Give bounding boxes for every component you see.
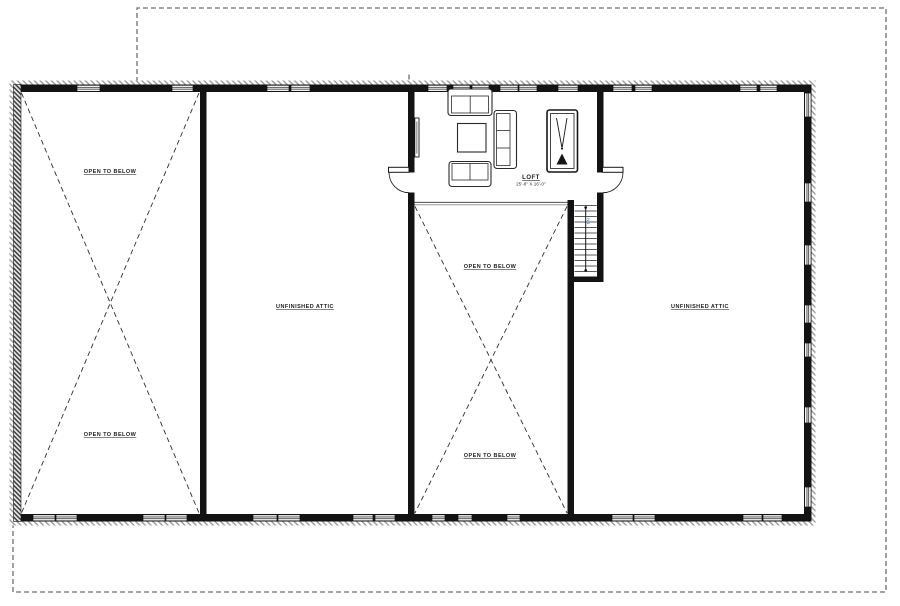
sofa [494, 111, 517, 169]
interior-walls [200, 85, 604, 515]
window [432, 515, 445, 521]
window [805, 487, 811, 507]
window [143, 515, 165, 521]
window [558, 85, 578, 91]
stair-down-label: DN [586, 218, 591, 224]
open-to-below-x-left [22, 93, 200, 513]
open-to-below-x-middle [415, 207, 567, 514]
window [56, 515, 77, 521]
room-label-open-to-below-mid-top: OPEN TO BELOW [464, 264, 517, 270]
room-label-loft: LOFT [522, 175, 540, 181]
window [291, 85, 310, 91]
window [805, 407, 811, 423]
door-loft-to-left-attic [389, 167, 410, 192]
window [743, 515, 762, 521]
window [635, 85, 652, 91]
window [805, 93, 811, 117]
tv [415, 118, 419, 157]
window [760, 85, 777, 91]
loveseat-bottom [449, 162, 491, 187]
wall-left-hatched [14, 85, 22, 522]
window [634, 515, 655, 521]
wall-stair-east [597, 193, 604, 283]
wall-right [804, 85, 812, 522]
window [805, 183, 811, 202]
wall-loft-west-lower [408, 193, 415, 515]
window [612, 515, 633, 521]
room-label-open-to-below-left-bottom: OPEN TO BELOW [84, 432, 137, 438]
window [33, 515, 55, 521]
wall-loft-west-upper [408, 85, 415, 173]
door-leaf [603, 167, 624, 172]
window [519, 85, 537, 91]
stairs-down: DN [575, 206, 597, 272]
loft-furniture [415, 89, 578, 187]
room-label-open-to-below-left-top: OPEN TO BELOW [84, 169, 137, 175]
loveseat-top [448, 89, 492, 116]
room-label-unfinished-attic-right: UNFINISHED ATTIC [671, 304, 729, 310]
room-labels: OPEN TO BELOW OPEN TO BELOW UNFINISHED A… [84, 169, 729, 459]
window [458, 515, 472, 521]
loft-dimensions: 25'-8" X 16'-0" [516, 182, 546, 187]
window [172, 85, 193, 91]
coffee-table [458, 124, 487, 153]
window [375, 515, 395, 521]
window [507, 515, 520, 521]
room-label-open-to-below-mid-bottom: OPEN TO BELOW [464, 453, 517, 459]
pool-table [547, 110, 578, 172]
window [613, 85, 632, 91]
window [267, 85, 289, 91]
loft-railing [415, 202, 568, 205]
wall-void-east [568, 200, 575, 514]
window [805, 245, 811, 265]
wall-loft-east-upper [597, 85, 604, 173]
wall-attic-left-divider [200, 85, 207, 515]
window [500, 85, 518, 91]
window [77, 85, 100, 91]
window [353, 515, 373, 521]
door-swing-arc [389, 173, 409, 193]
door-loft-to-right-attic [603, 167, 624, 192]
window [166, 515, 187, 521]
window [428, 85, 447, 91]
window [278, 515, 300, 521]
window [805, 343, 811, 357]
cue-ball [561, 147, 563, 149]
window [253, 515, 277, 521]
room-label-unfinished-attic-left: UNFINISHED ATTIC [276, 304, 334, 310]
door-leaf [389, 167, 410, 172]
floor-plan-drawing: DN [0, 0, 900, 606]
floor-plan-page: DN [0, 0, 900, 606]
wall-stair-bottom [568, 277, 604, 283]
wall-bottom [14, 514, 812, 522]
window [805, 305, 811, 323]
door-swing-arc [603, 173, 623, 193]
window [763, 515, 782, 521]
window [740, 85, 757, 91]
